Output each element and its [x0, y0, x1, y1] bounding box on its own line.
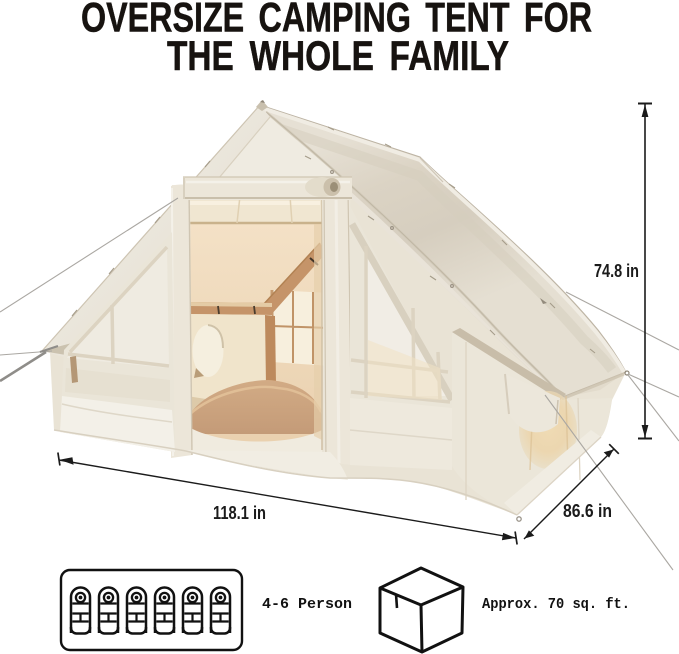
svg-text:118.1 in: 118.1 in	[213, 502, 266, 523]
svg-text:Approx. 70 sq. ft.: Approx. 70 sq. ft.	[482, 596, 630, 613]
svg-text:86.6 in: 86.6 in	[563, 500, 612, 521]
svg-text:THE WHOLE FAMILY: THE WHOLE FAMILY	[167, 32, 509, 79]
svg-text:74.8 in: 74.8 in	[594, 260, 639, 281]
svg-text:4-6 Person: 4-6 Person	[262, 596, 352, 613]
